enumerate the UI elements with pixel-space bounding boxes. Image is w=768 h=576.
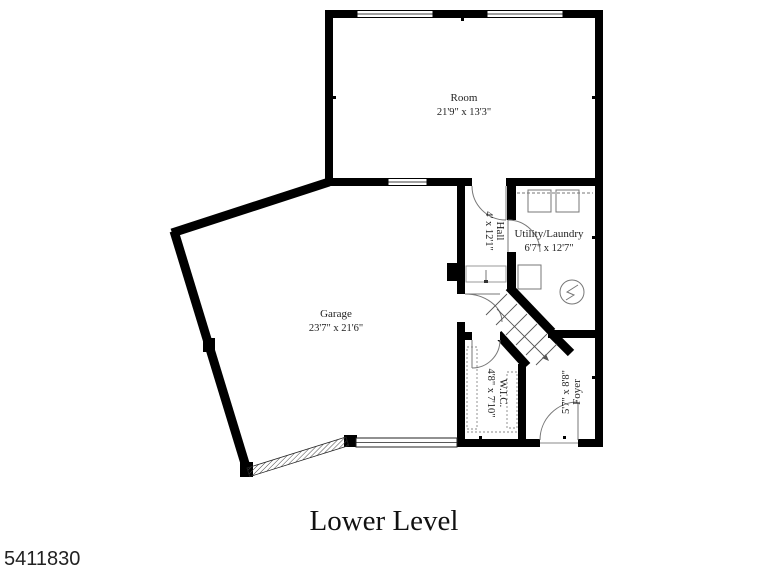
wic-dimensions: 4'8" x 7'10" bbox=[485, 368, 496, 417]
water-heater-icon bbox=[560, 280, 584, 304]
wall-room-right bbox=[595, 10, 603, 186]
garage-door-front bbox=[356, 438, 457, 447]
floor-plan-drawing: Room 21'9" x 13'3" Garage 23'7" x 21'6" … bbox=[0, 0, 768, 576]
room-label: Room bbox=[451, 92, 478, 104]
wic-label: W.I.C. bbox=[497, 379, 509, 408]
floor-plan-page: Room 21'9" x 13'3" Garage 23'7" x 21'6" … bbox=[0, 0, 768, 576]
foyer-label: Foyer bbox=[571, 379, 583, 405]
opening-hall-top bbox=[472, 178, 506, 186]
garage-dimensions: 23'7" x 21'6" bbox=[309, 323, 363, 334]
utility-dimensions: 6'7" x 12'7" bbox=[524, 243, 573, 254]
door-arc-foyer-entry bbox=[540, 402, 578, 440]
wall-wic-right bbox=[518, 364, 526, 447]
wall-garage-topleft-diagonal bbox=[172, 182, 329, 233]
wall-pier-interior bbox=[447, 263, 457, 281]
hall-cased-opening bbox=[466, 266, 506, 283]
opening-wic bbox=[472, 332, 500, 340]
room-dimensions: 21'9" x 13'3" bbox=[437, 107, 491, 118]
garage-label: Garage bbox=[320, 308, 352, 320]
wall-right bbox=[595, 186, 603, 447]
utility-label: Utility/Laundry bbox=[514, 228, 584, 240]
hall-dimensions: 4' x 12'1" bbox=[483, 211, 494, 251]
wall-bottom bbox=[457, 439, 603, 447]
wall-room-left bbox=[325, 10, 333, 186]
wall-pier-garage bbox=[203, 338, 215, 352]
plan-title: Lower Level bbox=[0, 505, 768, 538]
utility-fixture-box bbox=[518, 265, 541, 289]
mls-number: 5411830 bbox=[4, 548, 80, 571]
garage-door-angled bbox=[247, 437, 349, 477]
door-arc-garage-landing bbox=[465, 294, 502, 322]
water-heater-bolt-icon bbox=[566, 285, 578, 300]
hall-label: Hall bbox=[494, 222, 506, 241]
foyer-dimensions: 5'7" x 8'8" bbox=[561, 370, 572, 414]
opening-garage-landing bbox=[457, 294, 465, 322]
door-arc-wic bbox=[472, 340, 500, 368]
